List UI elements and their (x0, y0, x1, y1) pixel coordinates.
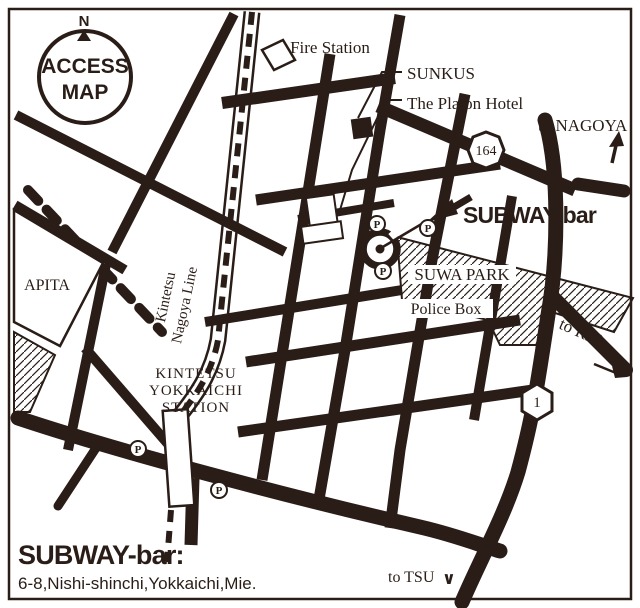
parking-icon: P (211, 482, 227, 498)
parking-icon: P (375, 263, 391, 279)
apita-label: APITA (24, 277, 70, 294)
svg-text:P: P (216, 485, 223, 497)
to-tsu-label: to TSU (388, 569, 435, 586)
route-164-number: 164 (476, 144, 497, 159)
platon-hotel-label: The Platon Hotel (407, 94, 523, 113)
station-label-line3: STATION (162, 400, 230, 416)
road (238, 390, 533, 432)
road-route1-highway (462, 120, 556, 602)
access-map-title-line2: MAP (62, 81, 109, 104)
parking-icon: P (420, 220, 436, 236)
to-nagoya-label: to NAGOYA (538, 116, 628, 135)
nagoya-arrow-icon (609, 131, 624, 163)
svg-text:P: P (374, 219, 381, 231)
compass: N ACCESS MAP (39, 13, 131, 123)
station-label-line2: YOKKAICHI (149, 383, 243, 399)
svg-text:P: P (135, 444, 142, 456)
north-label: N (79, 13, 90, 30)
access-map-title-line1: ACCESS (41, 55, 129, 78)
footer-name: SUBWAY-bar: (18, 540, 184, 570)
road (58, 448, 96, 506)
road (205, 290, 402, 322)
route-164-shield: 164 (468, 132, 504, 168)
road-main-southwest (18, 418, 500, 551)
svg-text:P: P (425, 223, 432, 235)
station-building (163, 409, 195, 507)
subway-bar-map-label: SUBWAY-bar (463, 202, 597, 228)
station-label-line1: KINTETSU (155, 366, 236, 382)
parking-icon: P (130, 441, 146, 457)
footer: SUBWAY-bar: 6-8,Nishi-shinchi,Yokkaichi,… (18, 540, 256, 593)
footer-address: 6-8,Nishi-shinchi,Yokkaichi,Mie. (18, 574, 256, 593)
fire-station-label: Fire Station (290, 38, 370, 57)
tsu-arrow: ∨ (442, 569, 456, 588)
suwa-park-label: SUWA PARK (414, 265, 510, 284)
station-label: KINTETSU YOKKAICHI STATION (149, 366, 243, 416)
parking-icon: P (369, 216, 385, 232)
sunkus-label: SUNKUS (407, 64, 475, 83)
access-map: 164 1 P P P P P Fire Station SUNKUS T (0, 0, 640, 608)
svg-text:P: P (380, 266, 387, 278)
apita-hatch-area (14, 332, 55, 412)
police-box-label: Police Box (411, 301, 482, 318)
road-east-spur (578, 184, 624, 191)
route-1-number: 1 (533, 395, 541, 411)
sunkus-building (351, 117, 374, 140)
route-1-shield: 1 (522, 384, 552, 420)
